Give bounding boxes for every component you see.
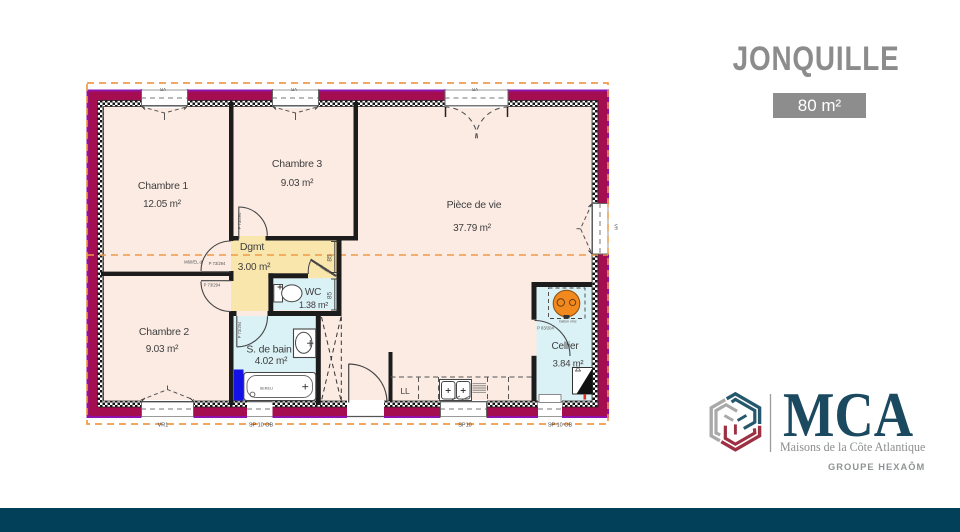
- svg-text:Dgmt: Dgmt: [240, 241, 265, 253]
- svg-text:VR: VR: [614, 224, 619, 231]
- svg-text:Cellier: Cellier: [552, 341, 580, 352]
- svg-text:S. de bain: S. de bain: [246, 344, 292, 356]
- svg-text:3.00 m²: 3.00 m²: [238, 262, 271, 273]
- svg-text:85: 85: [327, 292, 334, 300]
- svg-text:Chambre 3: Chambre 3: [272, 158, 323, 170]
- svg-text:1.38 m²: 1.38 m²: [299, 300, 328, 310]
- svg-text:12.05 m²: 12.05 m²: [143, 199, 182, 210]
- svg-text:3.84 m²: 3.84 m²: [553, 359, 584, 370]
- svg-text:85: 85: [327, 254, 334, 262]
- svg-text:SERELI: SERELI: [260, 387, 274, 391]
- svg-text:SP 10 OB: SP 10 OB: [548, 423, 573, 429]
- svg-text:WC: WC: [305, 287, 321, 298]
- svg-text:P 73/294: P 73/294: [209, 261, 226, 266]
- svg-text:9.03 m²: 9.03 m²: [146, 344, 179, 355]
- svg-text:M60/EL d: M60/EL d: [184, 260, 202, 265]
- svg-text:37.79 m²: 37.79 m²: [453, 223, 492, 234]
- svg-text:LL: LL: [400, 386, 410, 396]
- svg-text:ballon vmc: ballon vmc: [559, 320, 576, 324]
- svg-text:SP10: SP10: [458, 423, 471, 429]
- svg-text:Chambre 1: Chambre 1: [138, 180, 189, 192]
- svg-text:4.02 m²: 4.02 m²: [255, 356, 288, 367]
- svg-text:P 73/294: P 73/294: [237, 321, 242, 338]
- svg-text:9.03 m²: 9.03 m²: [281, 178, 314, 189]
- svg-text:Chambre 2: Chambre 2: [139, 326, 190, 338]
- svg-text:VR: VR: [471, 87, 478, 92]
- svg-text:VR: VR: [159, 87, 166, 92]
- svg-text:P 73/294: P 73/294: [204, 283, 221, 288]
- svg-text:P 83/204: P 83/204: [537, 326, 554, 331]
- svg-text:Pièce de vie: Pièce de vie: [447, 199, 502, 211]
- svg-text:P 73/294: P 73/294: [237, 212, 242, 229]
- svg-text:VR1: VR1: [158, 423, 169, 429]
- svg-text:VR: VR: [290, 87, 297, 92]
- svg-text:SP 10 OB: SP 10 OB: [249, 423, 274, 429]
